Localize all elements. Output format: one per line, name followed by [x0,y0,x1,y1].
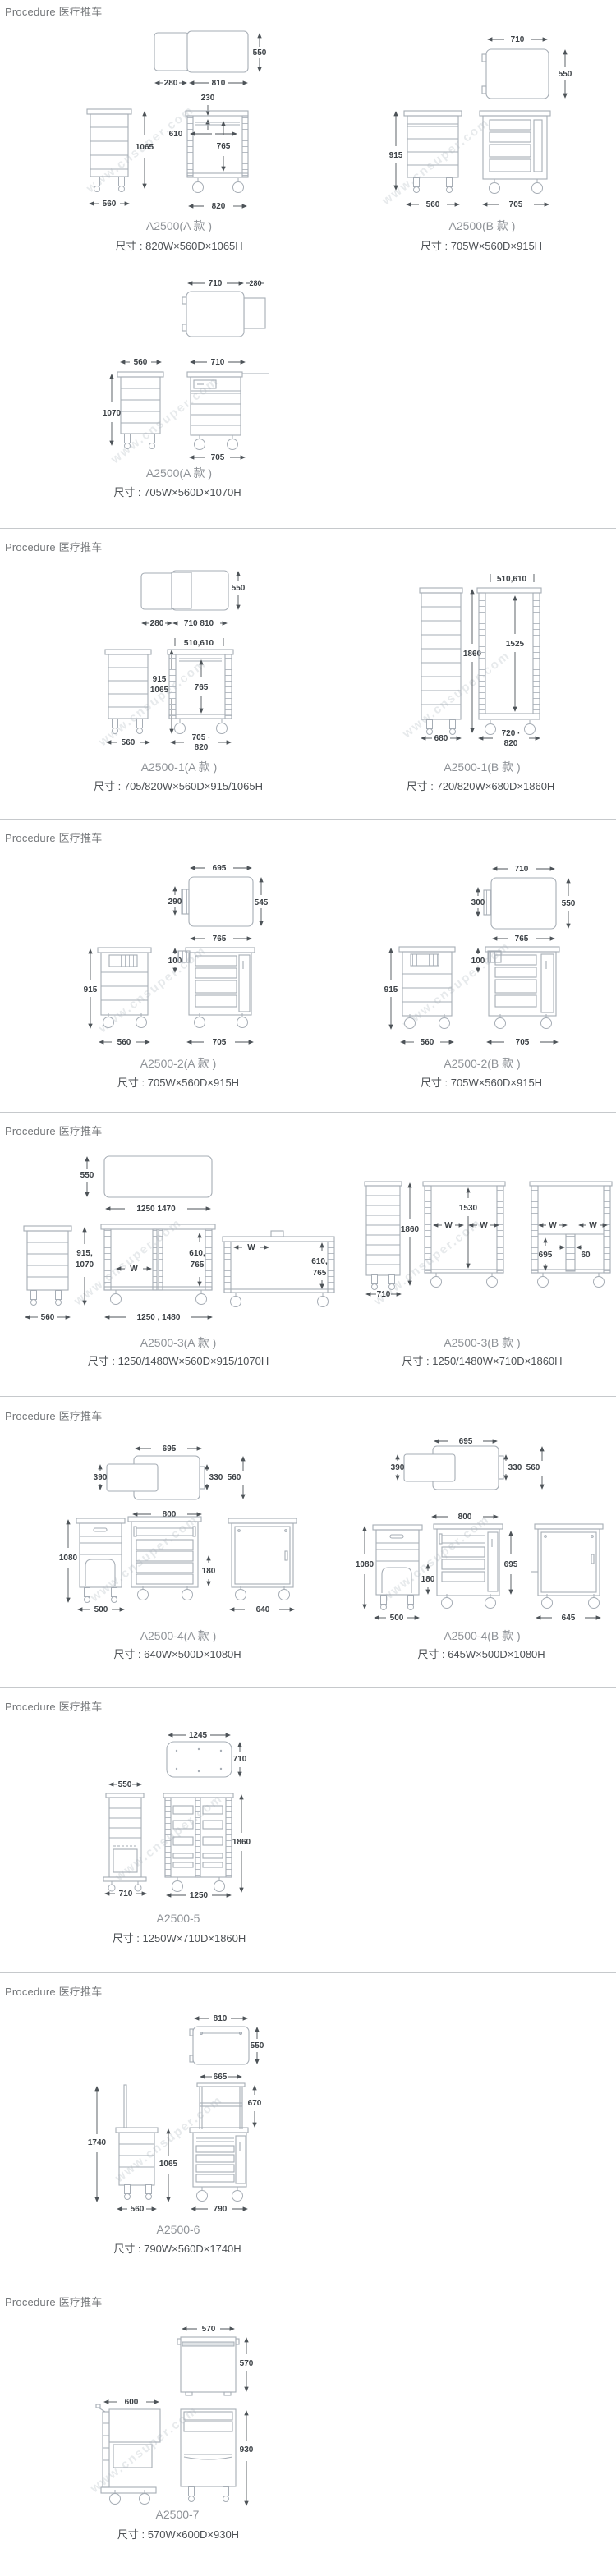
dim-label: 1070 [103,409,122,418]
dim-label: 1065 [136,143,154,152]
dim-label: 560 [426,200,440,209]
dim-label: 710 [515,865,529,874]
model-label: A2500-4(A 款 ) [113,1628,244,1644]
dim-label: 1065 [150,686,169,695]
section-procedure-5: Procedure 医疗推车 www.cnsuper.com www.cnsup… [0,1396,616,1688]
size-label: 尺寸 : 1250W×710D×1860H [85,1930,274,1945]
dim-label: 550 [562,899,576,908]
dim-label: 1245 [189,1731,208,1740]
size-label: 尺寸 : 640W×500D×1080H [83,1646,272,1661]
dim-label: 1080 [59,1554,78,1563]
model-label: A2500-2(A 款 ) [113,1055,244,1072]
dim-label: 1740 [88,2138,107,2147]
size-label: 尺寸 : 645W×500D×1080H [387,1646,576,1661]
dim-label: 695 [504,1560,518,1569]
dim-label: W [444,1221,453,1230]
dim-label: 680 [434,734,448,743]
dim-label: 930 [240,2445,254,2454]
dim-label: 560 [526,1463,540,1472]
model-label: A2500-2(B 款 ) [416,1055,548,1072]
model-label: A2500-1(B 款 ) [416,759,548,775]
dim-label: 570 [240,2359,254,2368]
dim-label: 710 [377,1290,391,1299]
dim-label: 800 [163,1510,177,1519]
dim-label: 670 [248,2099,262,2108]
dim-label: 1860 [401,1225,420,1234]
dim-label: 560 [228,1473,241,1482]
dim-label: 610, [311,1257,328,1266]
dim-label: 550 [118,1780,132,1789]
dim-label: 510,610 [497,575,527,584]
model-label: A2500(B 款 ) [416,218,548,234]
dim-label: W [480,1221,488,1230]
dim-label: 560 [41,1313,55,1322]
dim-label: 1250 , 1480 [137,1313,181,1322]
size-label: 尺寸 : 1250/1480W×560D×915/1070H [84,1352,273,1368]
model-label: A2500-6 [113,2223,244,2236]
dim-label: 560 [103,200,117,209]
dim-label: 180 [421,1575,435,1584]
dim-label: 1860 [232,1838,251,1847]
section-procedure-1: Procedure 医疗推车 www.cnsuper.com www.cnsup… [0,0,616,528]
dim-label: 390 [391,1463,405,1472]
dim-label: W [130,1265,138,1274]
model-label: A2500-3(B 款 ) [416,1334,548,1351]
section-procedure-2: Procedure 医疗推车 www.cnsuper.com www.cnsup… [0,528,616,820]
dim-label: 610 [169,130,183,139]
dim-label: 915 [384,985,398,994]
dim-label: 330 [209,1473,223,1482]
dim-label: 705 [213,1038,227,1047]
dim-label: 765 [515,934,529,944]
dim-label: 695 [459,1437,473,1446]
dim-label: 550 [80,1171,94,1180]
dim-label: 330 [508,1463,522,1472]
size-label: 尺寸 : 1250/1480W×710D×1860H [388,1352,577,1368]
technical-drawing-a2500-4: www.cnsuper.com www.cnsuper.com 695 390 … [0,1397,616,1688]
dim-label: 550 [559,70,572,79]
dim-label: 695 [539,1251,553,1260]
dim-label: 765 [195,683,209,692]
dim-label: 560 [117,1038,131,1047]
dim-label: 665 [214,2073,228,2082]
size-label: 尺寸 : 705W×560D×915H [84,1074,273,1090]
dim-label: 705 [211,453,225,462]
dim-label: 915 [84,985,98,994]
dim-label: 820 [212,202,226,211]
technical-drawing-a2500-6: www.cnsuper.com 810 550 665 670 [0,1973,616,2275]
dim-label: W [549,1221,557,1230]
section-procedure-7: Procedure 医疗推车 www.cnsuper.com 810 550 6… [0,1972,616,2275]
dim-label: 820 [504,739,518,748]
dim-label: 390 [94,1473,108,1482]
dim-label: 1080 [356,1560,375,1569]
dim-label: 1065 [159,2160,178,2169]
dim-label: W [247,1243,255,1252]
size-label: 尺寸 : 705W×560D×915H [387,1074,576,1090]
size-label: 尺寸 : 790W×560D×1740H [83,2240,272,2256]
dim-label: 1530 [459,1204,478,1213]
dim-label: 560 [131,2205,145,2214]
model-label: A2500-3(A 款 ) [113,1334,244,1351]
size-label: 尺寸 : 705/820W×560D×915/1065H [84,778,273,793]
dim-label: 545 [255,898,269,907]
size-label: 尺寸 : 720/820W×680D×1860H [386,778,575,793]
dim-label: 550 [253,48,267,57]
technical-drawing-a2500: www.cnsuper.com www.cnsuper.com www.cnsu… [0,0,616,528]
dim-label: 710 [211,358,225,367]
size-label: 尺寸 : 705W×560D×1070H [83,484,272,499]
model-label: A2500-1(A 款 ) [113,759,245,775]
dim-label: 705 [516,1038,530,1047]
watermark: www.cnsuper.com [379,1513,492,1605]
dim-label: 500 [94,1605,108,1614]
dim-label: 560 [134,358,148,367]
dim-label: 915 [153,675,167,684]
dim-label: 810 [212,79,226,88]
dim-label: 765 [313,1269,327,1278]
model-label: A2500-5 [113,1912,244,1925]
dim-label: 915 [389,151,403,160]
dim-label: 560 [421,1038,434,1047]
dim-label: 1250 1470 [136,1205,176,1214]
dim-label: 280 [150,619,164,628]
technical-drawing-a2500-1: www.cnsuper.com www.cnsuper.com 550 280 … [0,529,616,820]
dim-label: 765 [191,1260,205,1270]
dim-label: 1525 [506,640,525,649]
dim-label: 695 [213,864,227,873]
dim-label: 230 [201,94,215,103]
dim-label: 705 · [192,733,211,742]
dim-label: 550 [251,2041,264,2050]
dim-label: 800 [458,1513,472,1522]
size-label: 尺寸 : 705W×560D×915H [387,237,576,253]
dim-label: 570 [202,2325,216,2334]
dim-label: 765 [213,934,227,944]
dim-label: 915, [76,1249,93,1258]
dim-label: 810 [214,2014,228,2023]
dim-label: 720 · [502,729,521,738]
dim-label: 645 [562,1614,576,1623]
dim-label: 60 [581,1251,591,1260]
dim-label: 640 [256,1605,270,1614]
section-procedure-4: Procedure 医疗推车 www.cnsuper.com www.cnsup… [0,1112,616,1397]
dim-label: 510,610 [184,639,214,648]
section-procedure-6: Procedure 医疗推车 www.cnsuper.com 1245 710 … [0,1687,616,1973]
dim-label: 765 [217,142,231,151]
model-label: A2500(A 款 ) [113,218,245,234]
dim-label: 610, [189,1249,205,1258]
dim-label: 710 [119,1890,133,1899]
model-label: A2500(A 款 ) [113,465,245,481]
dim-label: 300 [471,898,485,907]
section-procedure-8: Procedure 医疗推车 www.cnsuper.com 570 570 6… [0,2275,616,2576]
section-procedure-3: Procedure 医疗推车 www.cnsuper.com www.cnsup… [0,819,616,1113]
dim-label: 710 [511,35,525,44]
dim-label: 280 [249,279,261,287]
dim-label: 600 [125,2398,139,2407]
dim-label: 705 [509,200,523,209]
dim-label: 500 [390,1614,404,1623]
model-label: A2500-4(B 款 ) [416,1628,548,1644]
dim-label: 560 [122,738,136,747]
dim-label: 180 [202,1567,216,1576]
spec-sheet-page: Procedure 医疗推车 www.cnsuper.com www.cnsup… [0,0,616,2576]
model-label: A2500-7 [112,2508,243,2521]
dim-label: 1070 [76,1260,94,1270]
dim-label: 550 [232,584,246,593]
dim-label: 710 [233,1755,247,1764]
dim-label: W [589,1221,597,1230]
dim-label: 695 [163,1444,177,1453]
dim-label: 820 [195,743,209,752]
size-label: 尺寸 : 570W×600D×930H [84,2526,273,2542]
dim-label: 100 [471,957,485,966]
dim-label: 710 [209,279,223,288]
size-label: 尺寸 : 820W×560D×1065H [85,237,274,253]
dim-label: 790 [214,2205,228,2214]
dim-label: 280 [164,79,178,88]
dim-label: 1250 [190,1891,209,1900]
dim-label: 290 [168,898,182,907]
dim-label: 710 810 [184,619,214,628]
